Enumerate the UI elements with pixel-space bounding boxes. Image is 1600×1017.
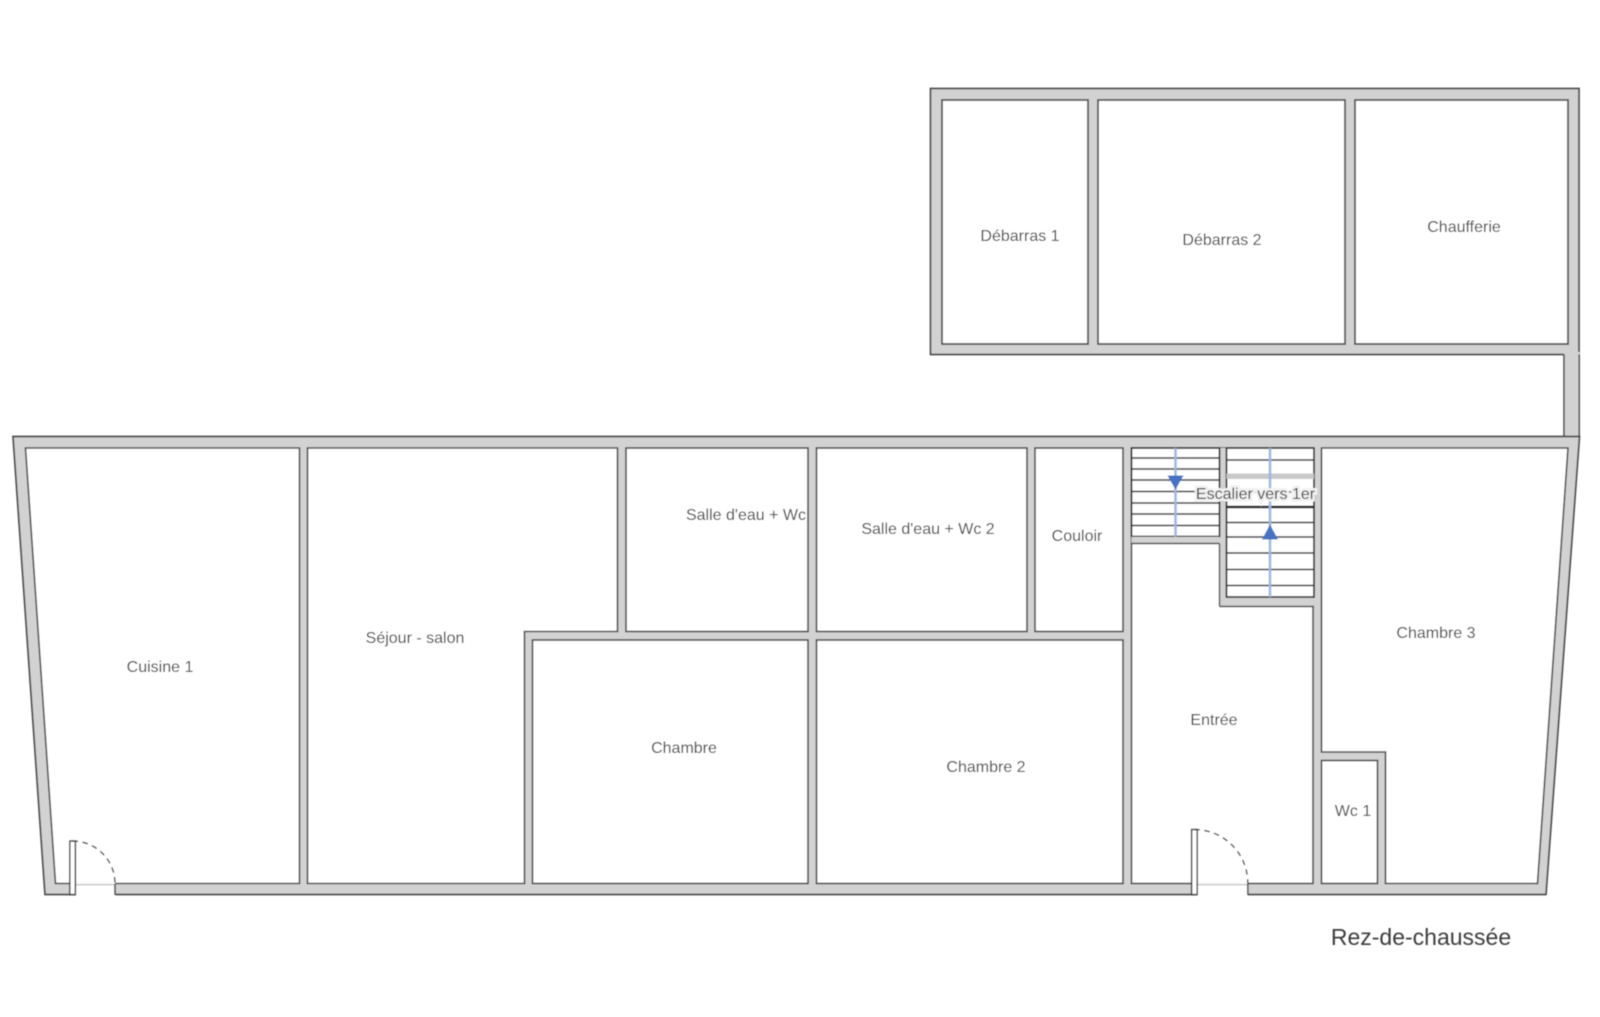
svg-text:Rez-de-chaussée: Rez-de-chaussée [1331,924,1511,950]
svg-text:Chambre 3: Chambre 3 [1396,625,1475,642]
svg-text:Débarras 1: Débarras 1 [980,228,1059,245]
svg-text:Chambre 2: Chambre 2 [946,759,1025,776]
svg-text:Débarras 2: Débarras 2 [1182,232,1261,249]
svg-text:Entrée: Entrée [1190,712,1237,729]
svg-text:Salle d'eau + Wc: Salle d'eau + Wc [686,507,806,524]
svg-text:Chaufferie: Chaufferie [1427,219,1501,236]
svg-text:Cuisine 1: Cuisine 1 [127,659,194,676]
svg-text:Chambre: Chambre [651,740,717,757]
svg-text:Escalier vers 1er: Escalier vers 1er [1196,486,1316,503]
svg-text:Couloir: Couloir [1052,528,1103,545]
svg-text:Salle d'eau + Wc 2: Salle d'eau + Wc 2 [861,521,994,538]
svg-text:Wc 1: Wc 1 [1335,803,1372,820]
svg-text:Séjour - salon: Séjour - salon [366,630,465,647]
